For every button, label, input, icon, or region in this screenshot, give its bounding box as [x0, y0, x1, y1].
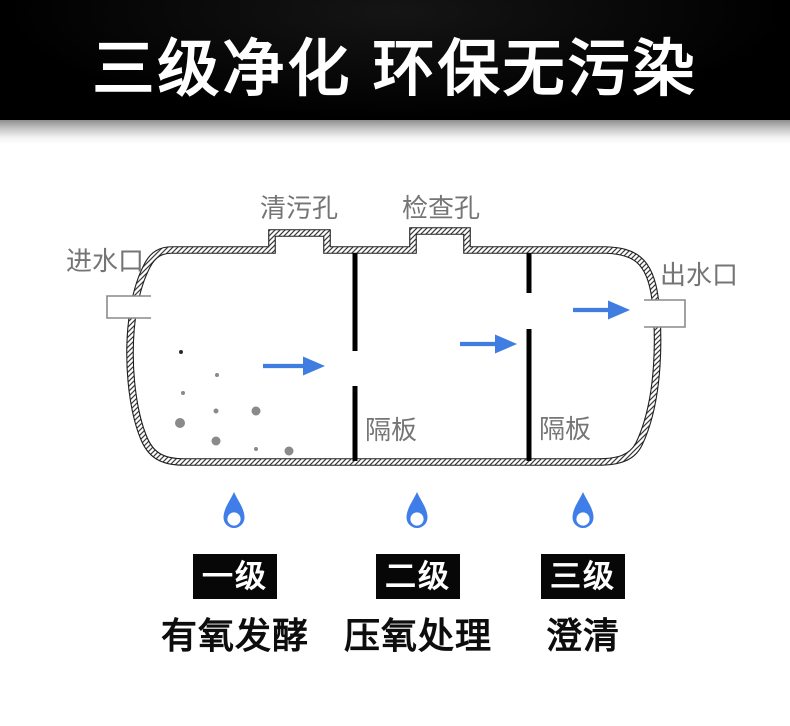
baffle-label-1: 隔板: [365, 416, 417, 444]
partition-1-lower: [353, 386, 358, 461]
flow-arrow-2: [460, 335, 517, 354]
outlet-pipe: [644, 300, 685, 327]
cleaning-hole-label: 清污孔: [260, 194, 338, 222]
flow-arrow-1: [263, 357, 325, 376]
inspection-hole-label: 检查孔: [402, 194, 480, 222]
stage-2-badge: 二级: [376, 554, 460, 599]
stage-1-description: 有氧发酵: [161, 607, 309, 659]
stage-3-block: 三级 澄清: [541, 554, 625, 659]
stage-3-badge: 三级: [541, 554, 625, 599]
stage-2-block: 二级 压氧处理: [344, 554, 492, 659]
water-drop-icon-3: [573, 492, 594, 528]
outlet-label: 出水口: [660, 261, 738, 289]
stage-1-badge: 一级: [193, 554, 277, 599]
partition-1-upper: [353, 253, 358, 351]
inlet-label: 进水口: [66, 247, 144, 275]
inlet-pipe: [107, 296, 151, 318]
page-root: 三级净化 环保无污染: [0, 0, 790, 726]
stage-3-description: 澄清: [541, 607, 625, 659]
stage-2-description: 压氧处理: [344, 607, 492, 659]
water-drop-icon-2: [407, 492, 428, 528]
partition-2-lower: [527, 329, 532, 461]
stage-1-block: 一级 有氧发酵: [161, 554, 309, 659]
baffle-label-2: 隔板: [539, 415, 591, 443]
water-drop-icon-1: [224, 492, 245, 528]
partition-2-upper: [527, 253, 532, 293]
flow-arrow-3: [573, 301, 630, 320]
